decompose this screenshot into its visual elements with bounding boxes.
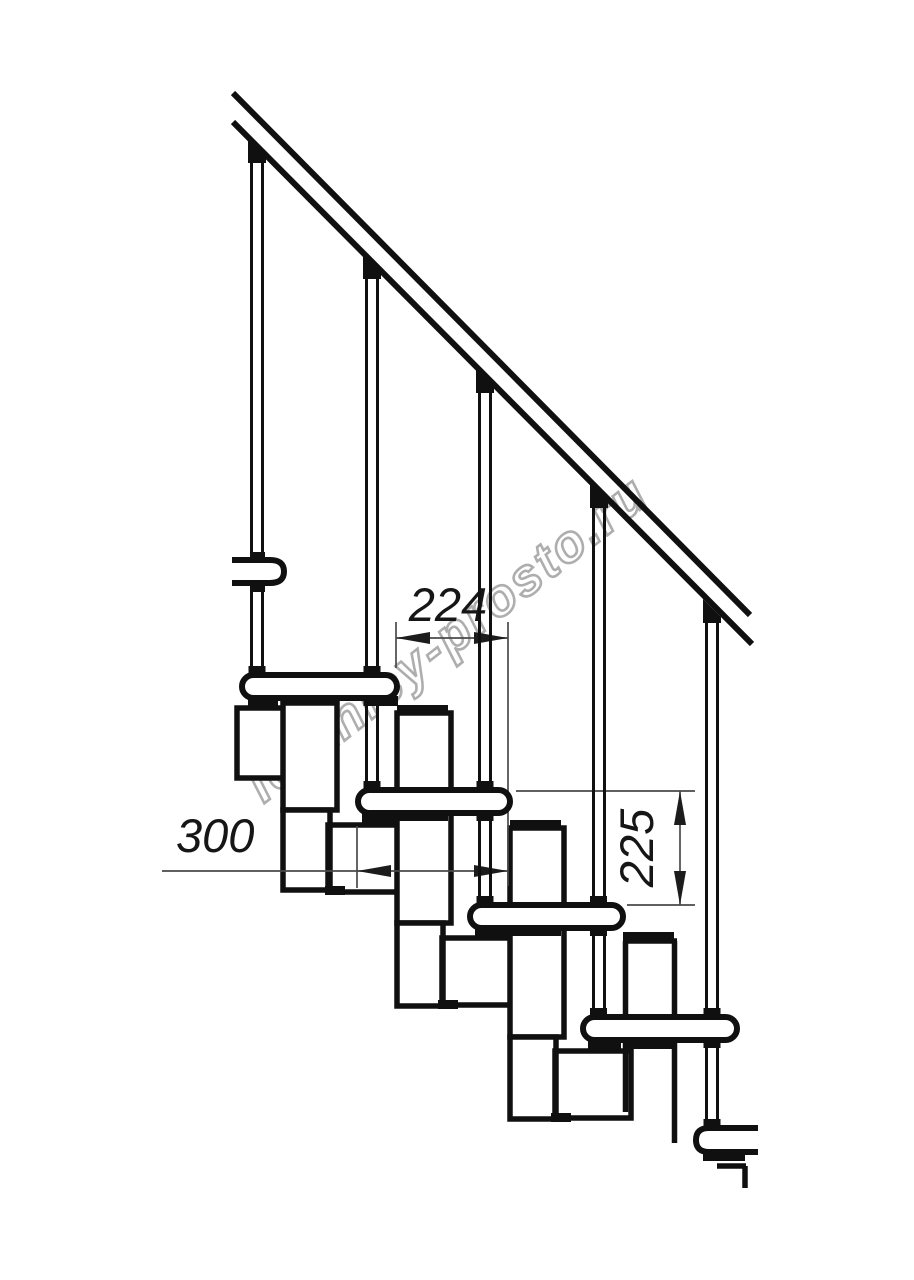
tread-1 xyxy=(242,675,397,698)
pad xyxy=(249,666,266,675)
pad xyxy=(477,812,494,821)
baluster-4 xyxy=(594,503,605,1017)
baluster-1 xyxy=(252,158,263,675)
arrowhead-left xyxy=(357,865,391,877)
module-column-2-lower xyxy=(397,923,443,1006)
staircase-technical-drawing: lestnicy-prosto.ru 224 xyxy=(0,0,914,1280)
tread-4 xyxy=(583,1017,737,1040)
module-bottom-trail xyxy=(717,1166,746,1188)
module-flange-1 xyxy=(328,825,405,892)
pad xyxy=(477,781,494,790)
pad xyxy=(397,812,448,821)
pad xyxy=(374,696,398,706)
module-column-1-upper xyxy=(283,703,337,810)
dim-label-224: 224 xyxy=(408,578,487,631)
pad xyxy=(588,1039,621,1051)
module-column-1-lower xyxy=(283,810,330,890)
pad xyxy=(364,781,381,790)
pad xyxy=(325,886,345,895)
pad xyxy=(362,813,395,825)
arrowhead-up xyxy=(674,791,686,825)
pad xyxy=(510,927,561,936)
arrowhead-down xyxy=(674,871,686,905)
dimension-tread-depth-300: 300 xyxy=(162,809,508,888)
pad xyxy=(397,705,448,713)
tread-2 xyxy=(358,790,510,813)
pad xyxy=(248,697,278,707)
pad xyxy=(704,1039,721,1048)
tread-3 xyxy=(470,905,623,928)
pad xyxy=(623,932,674,940)
pad xyxy=(590,927,607,936)
module-flange-2 xyxy=(442,938,518,1005)
pad xyxy=(704,1119,721,1128)
pad xyxy=(551,1113,571,1122)
drawing-canvas: lestnicy-prosto.ru 224 xyxy=(0,0,914,1280)
pad xyxy=(703,1152,745,1161)
pad xyxy=(364,666,381,675)
tread-0-cut xyxy=(232,560,284,583)
pad xyxy=(250,583,265,592)
pad xyxy=(590,1008,607,1017)
pad xyxy=(438,1000,458,1009)
pad xyxy=(477,896,494,905)
tread-5-cut xyxy=(696,1128,758,1152)
module-column-3-lower xyxy=(510,1037,556,1119)
baluster-5 xyxy=(707,617,718,1128)
pad xyxy=(250,552,265,561)
dim-label-300: 300 xyxy=(176,809,254,862)
module-flange-3 xyxy=(555,1051,631,1118)
dim-label-225: 225 xyxy=(610,808,663,888)
pad xyxy=(510,820,561,828)
pad xyxy=(704,1008,721,1017)
wall-bracket xyxy=(237,708,287,778)
handrail xyxy=(233,93,752,644)
pad xyxy=(475,926,508,938)
pad xyxy=(590,896,607,905)
pad xyxy=(623,1040,677,1049)
